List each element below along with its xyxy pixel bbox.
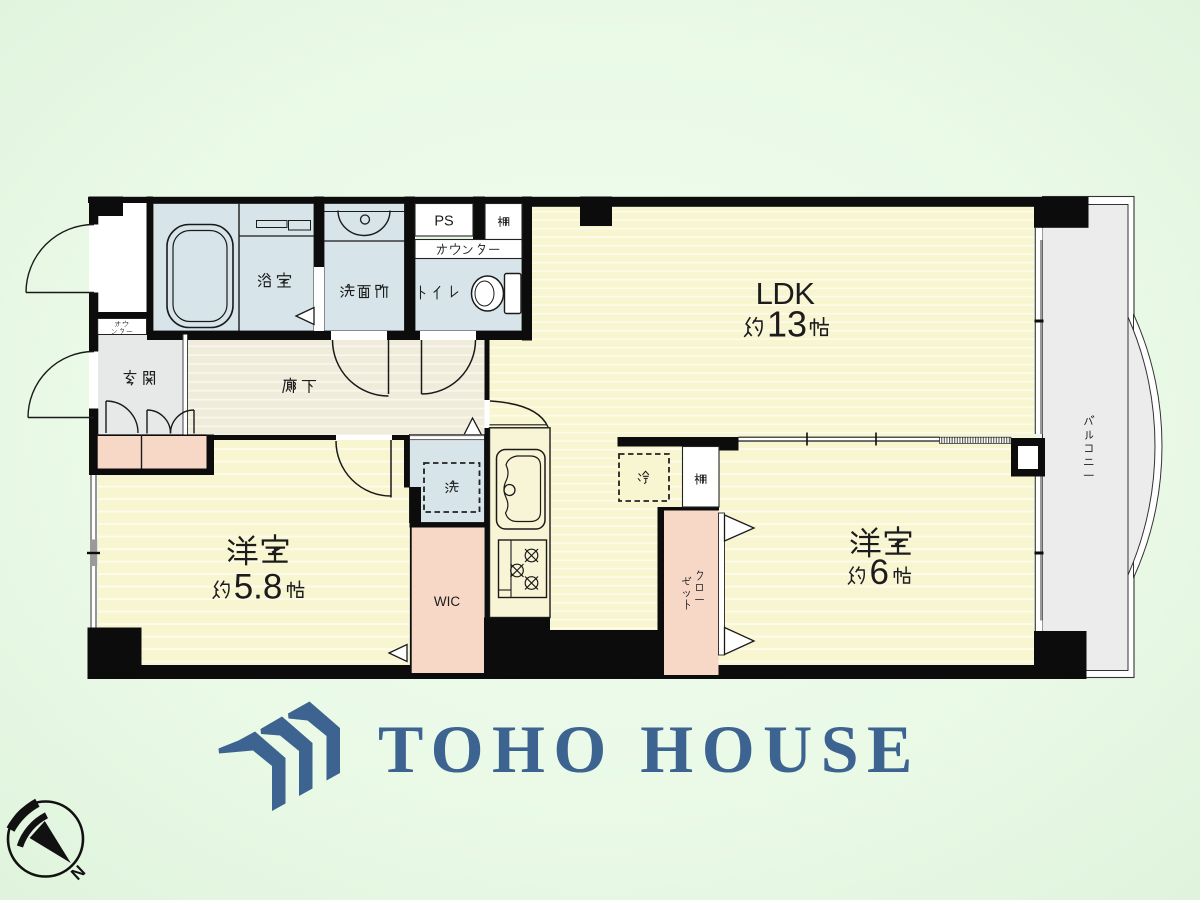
svg-text:13: 13 xyxy=(767,304,807,345)
svg-text:5.8: 5.8 xyxy=(234,568,283,607)
svg-text:WIC: WIC xyxy=(434,594,460,609)
svg-text:6: 6 xyxy=(870,553,889,592)
svg-text:PS: PS xyxy=(434,214,453,230)
svg-text:TOHO HOUSE: TOHO HOUSE xyxy=(378,711,921,787)
